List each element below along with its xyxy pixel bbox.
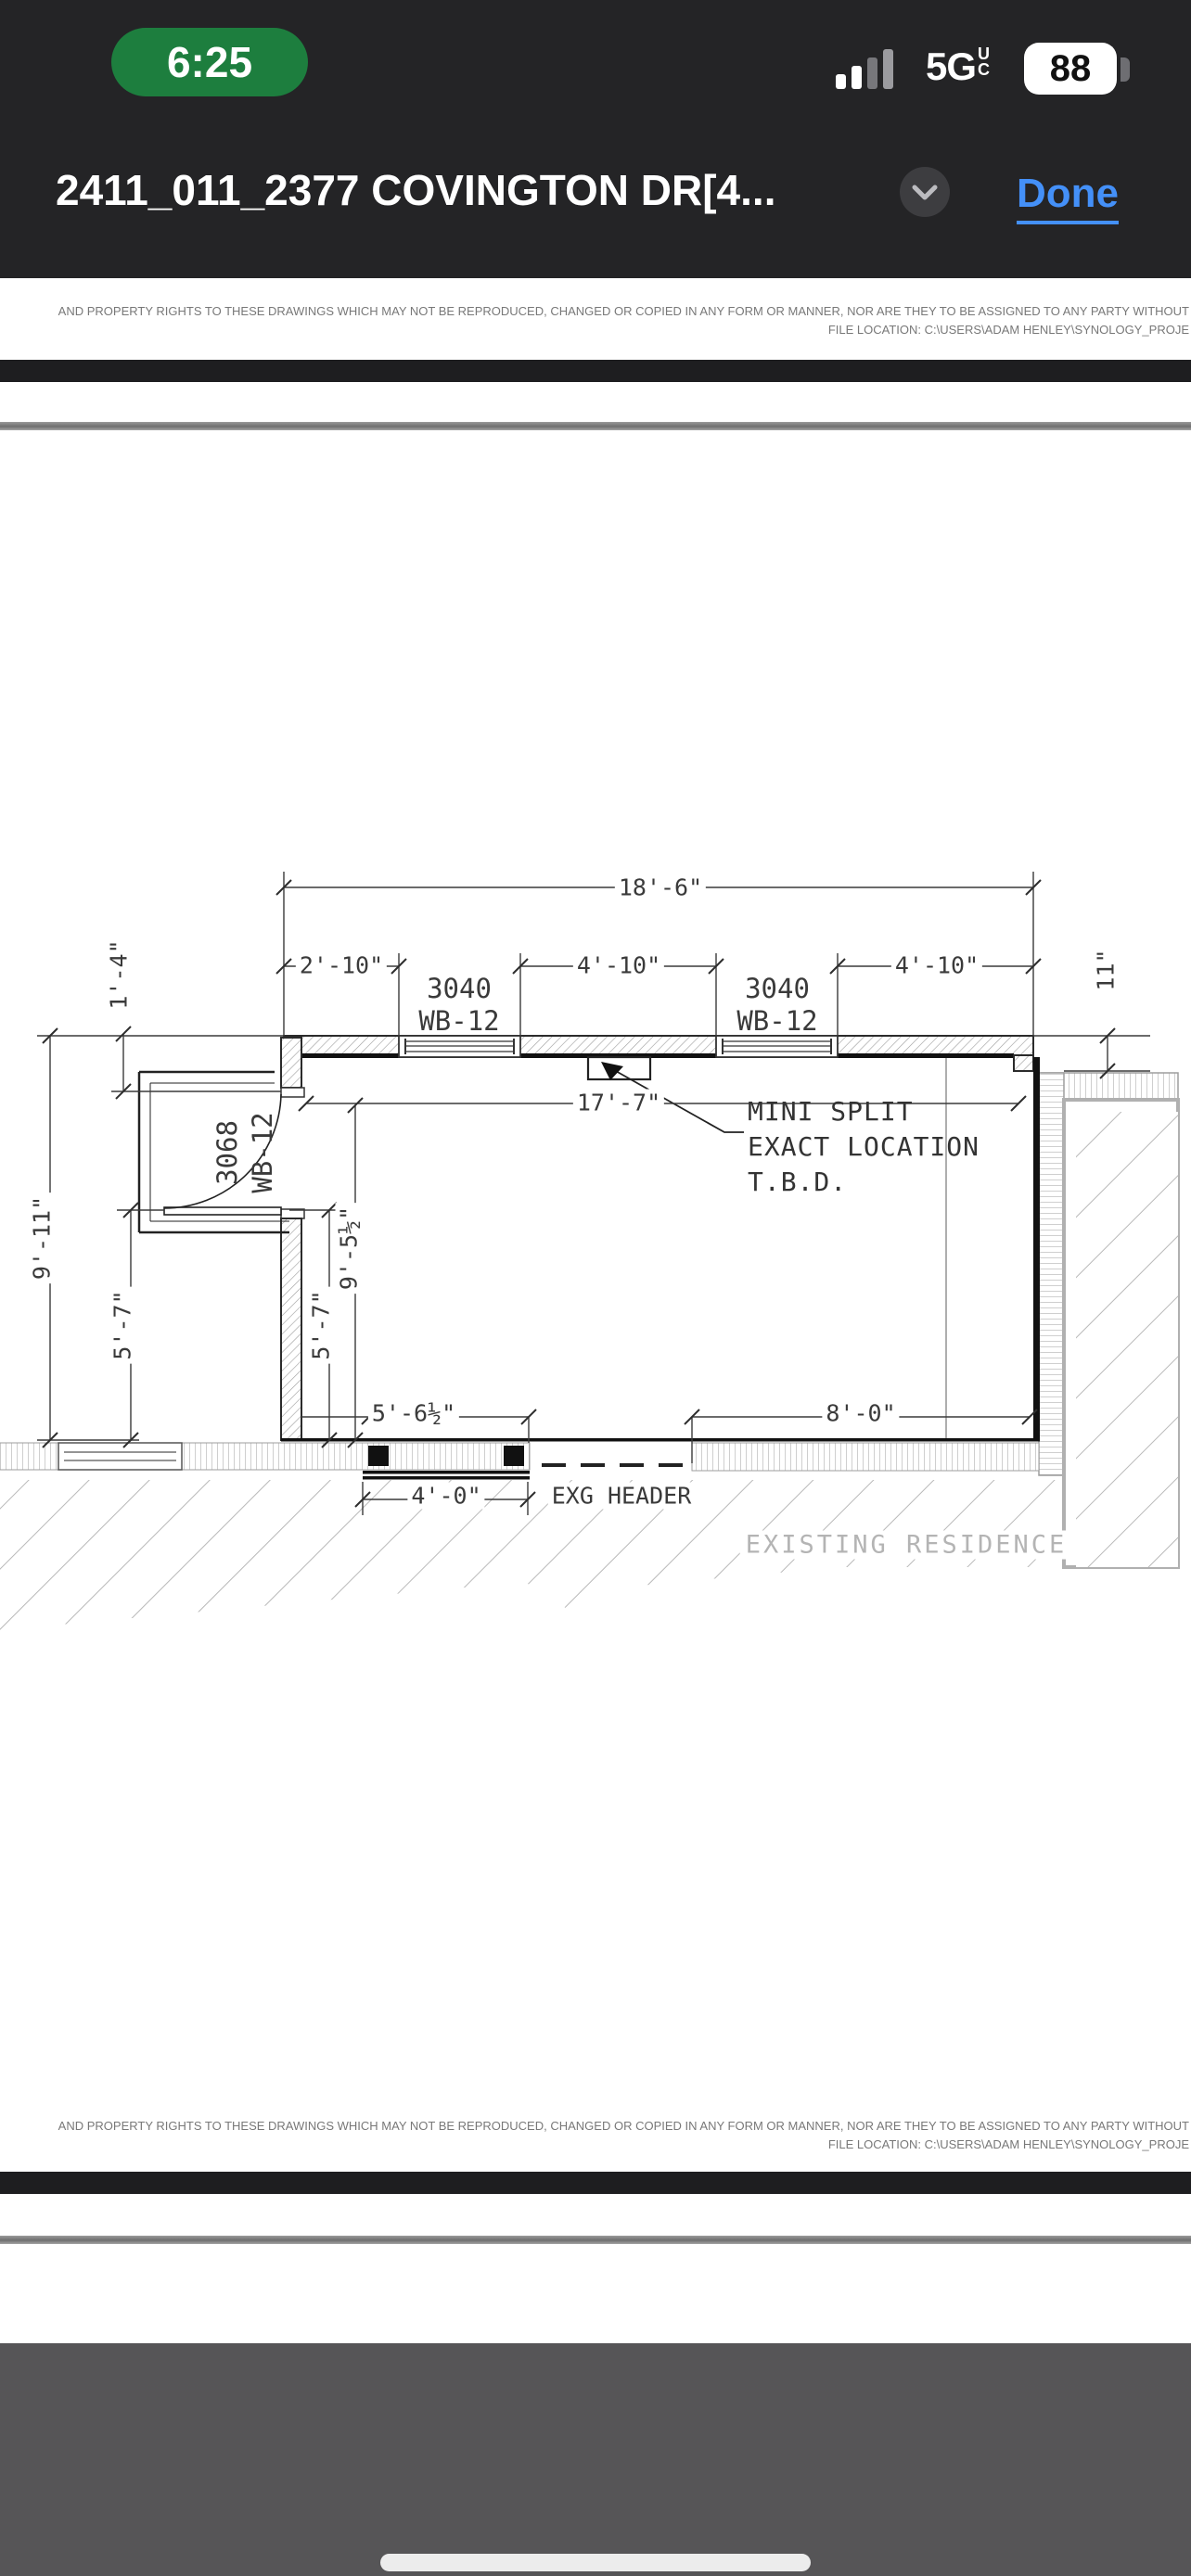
dim-overall-top: 18'-6" bbox=[615, 874, 706, 901]
door-label-line1: 3068 bbox=[211, 1120, 244, 1185]
dim-left-overall: 9'-11" bbox=[29, 1192, 56, 1283]
dim-header: 4'-0" bbox=[407, 1483, 484, 1510]
dim-bottom-opening: 5'-6½" bbox=[368, 1400, 459, 1427]
mini-split-note-3: T.B.D. bbox=[748, 1167, 847, 1197]
mini-split-note-2: EXACT LOCATION bbox=[748, 1131, 980, 1162]
existing-residence-label: EXISTING RESIDENCE bbox=[740, 1531, 1073, 1560]
mini-split-note-1: MINI SPLIT bbox=[748, 1096, 914, 1127]
window-label-2b: WB-12 bbox=[736, 1005, 817, 1037]
dim-bottom-right: 8'-0" bbox=[822, 1400, 899, 1427]
dim-top-seg-2: 4'-10" bbox=[573, 952, 664, 979]
fine-print-bottom-2: FILE LOCATION: C:\USERS\ADAM HENLEY\SYNO… bbox=[0, 2137, 1189, 2151]
dim-inner-lower: 5'-7" bbox=[308, 1286, 335, 1363]
door-label-line2: WB-12 bbox=[246, 1112, 279, 1192]
dim-top-seg-3: 4'-10" bbox=[891, 952, 982, 979]
fine-print-bottom-1: AND PROPERTY RIGHTS TO THESE DRAWINGS WH… bbox=[0, 2119, 1189, 2133]
window-label-1a: 3040 bbox=[427, 973, 492, 1004]
bottom-toolbar bbox=[0, 2343, 1191, 2576]
sheet-border-bar-bottom bbox=[0, 2172, 1191, 2194]
exg-header-label: EXG HEADER bbox=[548, 1483, 696, 1510]
dim-interior-vert: 9'-5½" bbox=[336, 1203, 363, 1294]
dim-right-offset: 11" bbox=[1093, 945, 1120, 994]
window-label-2a: 3040 bbox=[745, 973, 810, 1004]
home-indicator[interactable] bbox=[380, 2554, 811, 2571]
dim-left-offset: 1'-4" bbox=[106, 936, 133, 1013]
dim-top-seg-1: 2'-10" bbox=[296, 952, 387, 979]
page-separator-bottom bbox=[0, 2236, 1191, 2244]
window-label-1b: WB-12 bbox=[418, 1005, 499, 1037]
dim-left-lower: 5'-7" bbox=[109, 1286, 136, 1363]
iphone-screen: 6:25 5GUC 88 2411_011_2377 COVINGTON DR[… bbox=[0, 0, 1191, 2576]
dim-interior-top: 17'-7" bbox=[573, 1090, 664, 1116]
